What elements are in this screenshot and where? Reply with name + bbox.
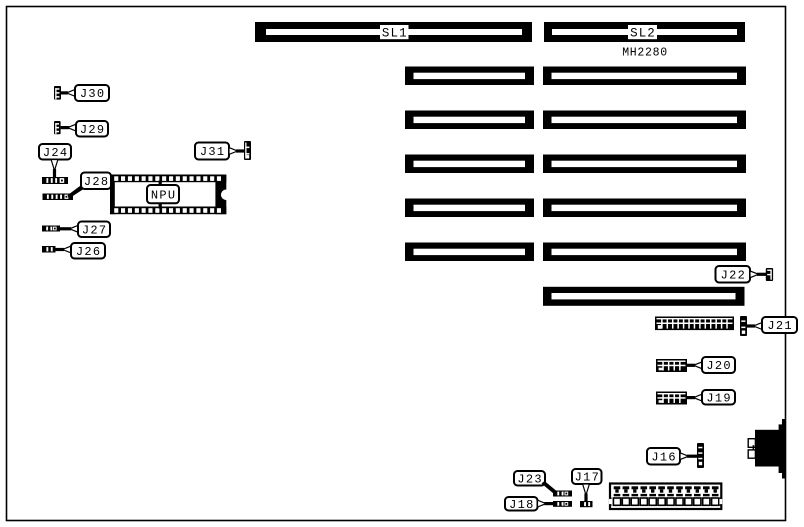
svg-text:J18: J18 xyxy=(509,498,535,512)
svg-text:J29: J29 xyxy=(80,123,106,137)
svg-text:MH2280: MH2280 xyxy=(622,47,668,60)
svg-text:J20: J20 xyxy=(706,359,732,373)
svg-text:SL2: SL2 xyxy=(630,26,656,40)
svg-text:SL1: SL1 xyxy=(382,26,408,40)
svg-text:J22: J22 xyxy=(721,268,747,282)
svg-text:J26: J26 xyxy=(76,245,102,259)
svg-text:NPU: NPU xyxy=(151,188,177,202)
svg-text:J23: J23 xyxy=(517,472,543,486)
svg-text:J28: J28 xyxy=(84,175,110,189)
svg-text:J30: J30 xyxy=(80,87,106,101)
svg-text:J21: J21 xyxy=(767,319,793,333)
svg-text:J16: J16 xyxy=(651,450,677,464)
svg-text:J27: J27 xyxy=(82,223,108,237)
svg-text:J31: J31 xyxy=(200,145,226,159)
svg-text:J19: J19 xyxy=(706,391,732,405)
svg-text:J24: J24 xyxy=(43,146,69,160)
svg-text:J17: J17 xyxy=(575,471,601,485)
